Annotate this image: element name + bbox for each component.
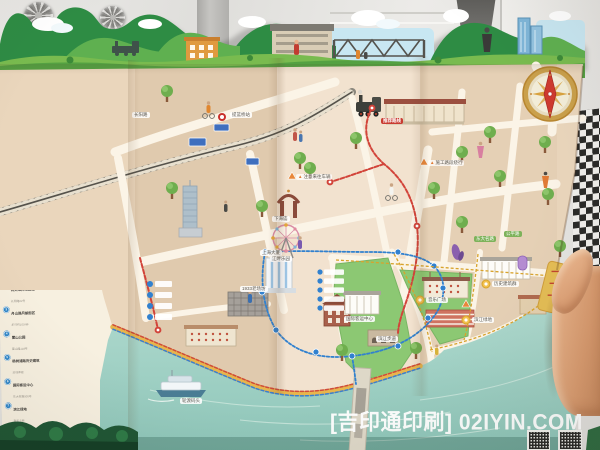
water-far-band	[100, 437, 578, 450]
warehouse-row	[184, 325, 238, 346]
warning-label: 注意来往车辆	[296, 174, 332, 180]
compass-rose	[523, 67, 577, 121]
temple-label: 下海庙	[272, 216, 290, 222]
qr-code	[558, 430, 582, 450]
ferry-label: 轮渡码头	[180, 398, 202, 404]
mansion-label: 上海大厦	[260, 250, 282, 256]
map-artwork	[0, 0, 600, 450]
road-name-label: 公平路	[504, 231, 522, 237]
metro-station-label: 提篮桥站	[230, 112, 252, 118]
route-badge-label: 推荐路线	[381, 118, 403, 124]
colonial-white-building	[343, 291, 381, 314]
qr-code	[527, 430, 550, 450]
amusement-label: 江畔乐园	[270, 256, 292, 262]
park-poi-label: 历史建筑群	[492, 281, 519, 287]
watermark-brand: [吉印通印刷]	[330, 410, 453, 434]
park-poi-label: 滨江绿地	[472, 317, 494, 323]
photo-of-illustrated-city-map: 路线一 建议游览时长：3小时 犹太难民纪念馆长阳路62号 · 9:00-17:0…	[0, 0, 600, 450]
warning-label: 施工路段绕行	[428, 160, 464, 166]
old-mill-building	[228, 292, 268, 316]
changfang-label: 1933老场坊	[240, 286, 268, 292]
promenade-label: 滨江步道	[376, 336, 398, 342]
passenger-center-label: 国际客运中心	[344, 316, 375, 322]
road-name-label: 长阳路	[132, 112, 150, 118]
park-poi-label: 音乐广场	[426, 297, 448, 303]
metro-station-pin	[218, 113, 226, 121]
road-name-label: 东大名路	[474, 236, 496, 242]
